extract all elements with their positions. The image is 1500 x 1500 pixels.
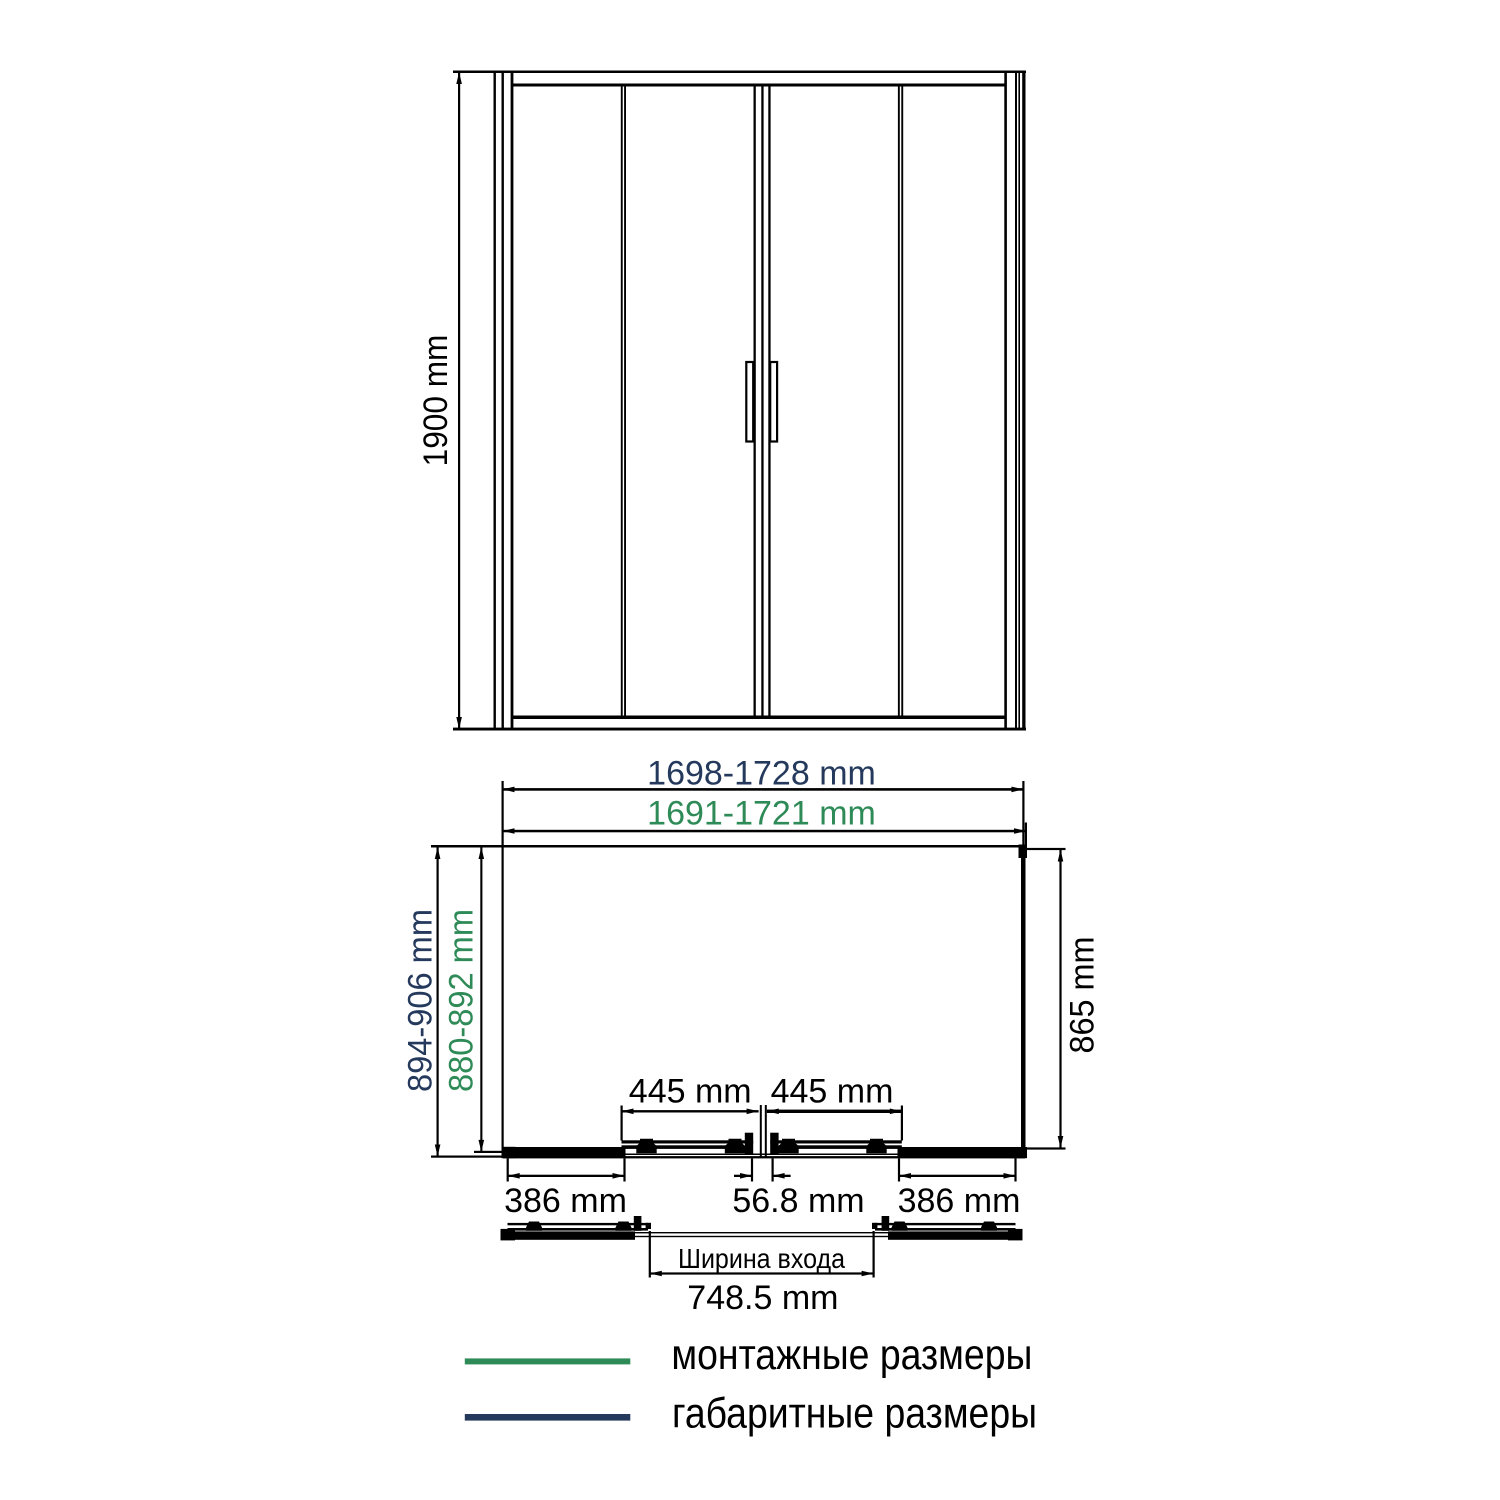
svg-text:Ширина входа: Ширина входа [678,1243,845,1274]
svg-text:1900 mm: 1900 mm [417,335,455,467]
svg-text:894-906 mm: 894-906 mm [401,909,439,1092]
svg-text:1691-1721 mm: 1691-1721 mm [647,794,876,832]
svg-text:445 mm: 445 mm [771,1073,894,1111]
svg-text:880-892 mm: 880-892 mm [443,909,481,1092]
svg-text:865 mm: 865 mm [1063,937,1101,1054]
svg-text:748.5 mm: 748.5 mm [687,1279,838,1317]
svg-text:56.8 mm: 56.8 mm [732,1182,864,1220]
svg-text:386 mm: 386 mm [504,1182,627,1220]
svg-text:1698-1728 mm: 1698-1728 mm [647,754,876,792]
svg-text:445 mm: 445 mm [629,1073,752,1111]
svg-text:386 mm: 386 mm [898,1182,1021,1220]
svg-text:габаритные размеры: габаритные размеры [672,1390,1037,1438]
svg-text:монтажные размеры: монтажные размеры [671,1331,1032,1379]
